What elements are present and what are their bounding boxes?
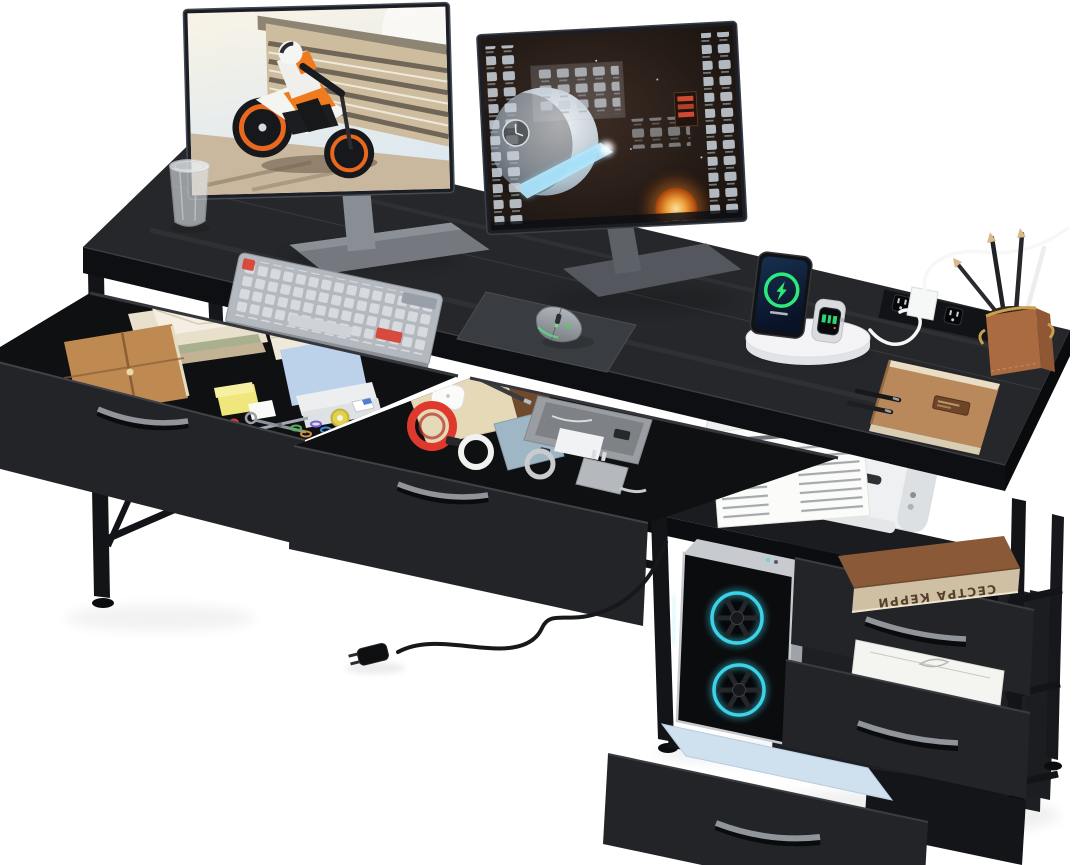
phone [749, 251, 813, 339]
smartwatch [811, 298, 847, 344]
product-photo: СЕСТРА КЕРРИ [0, 0, 1080, 865]
right-monitor-shadow [545, 288, 735, 312]
usb-charger [907, 287, 938, 320]
pen-cup-body [986, 308, 1041, 376]
outlet-socket [944, 306, 964, 325]
glass-cup [170, 160, 211, 234]
pc-fan-bottom [709, 660, 769, 720]
pc-fan-top [707, 588, 767, 648]
